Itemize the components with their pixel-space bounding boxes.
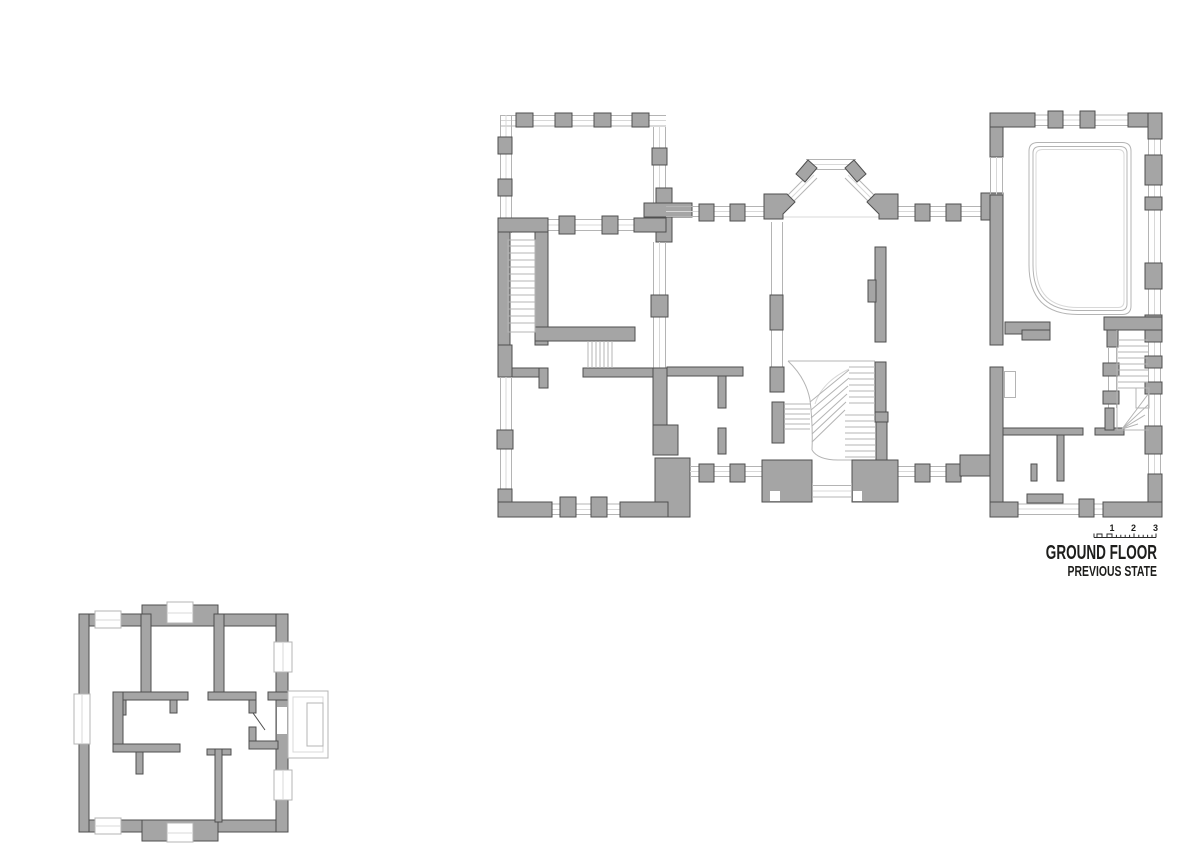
blueprint-canvas: 1 2 3 GROUND FLOOR PREVIOUS STATE <box>0 0 1200 854</box>
scale-label-1: 1 <box>1109 523 1114 533</box>
side-door-opening <box>277 707 287 734</box>
scale-label-3: 3 <box>1153 523 1158 533</box>
scale-label-2: 2 <box>1131 523 1136 533</box>
paper-background <box>0 0 1200 854</box>
architectural-drawing-page: 1 2 3 GROUND FLOOR PREVIOUS STATE <box>0 0 1200 854</box>
drawing-title: GROUND FLOOR <box>1046 540 1158 564</box>
drawing-subtitle: PREVIOUS STATE <box>1068 563 1157 579</box>
